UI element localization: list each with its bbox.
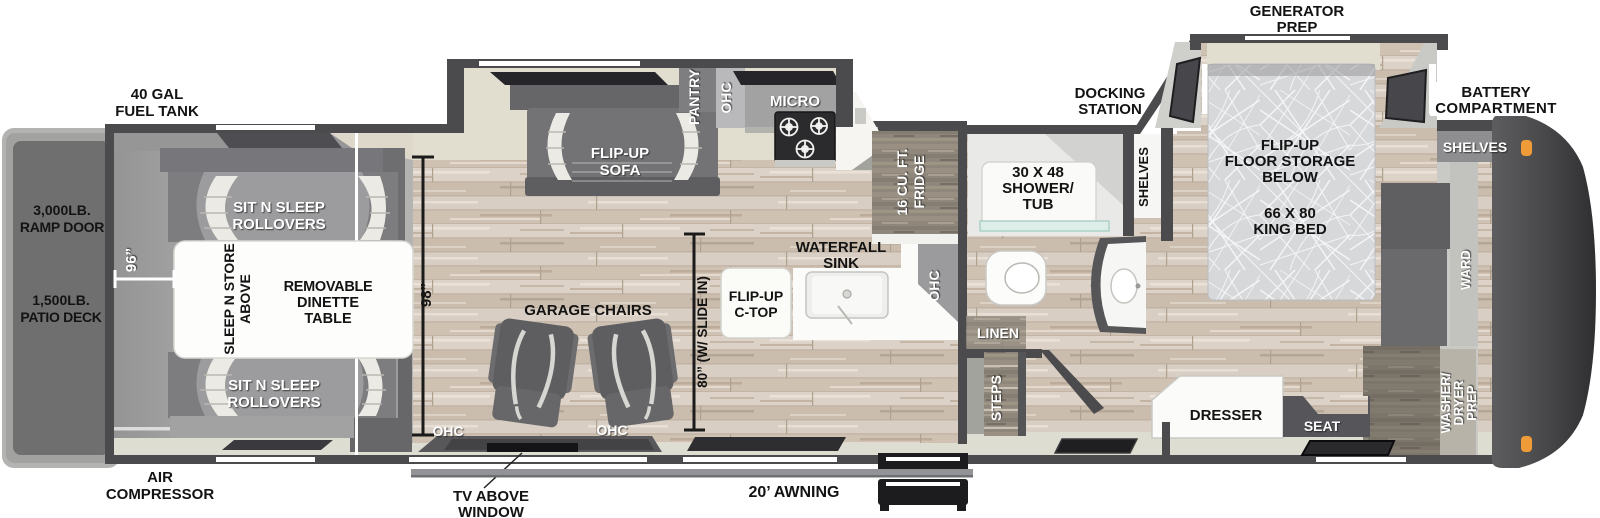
svg-text:PANTRY: PANTRY [686, 68, 702, 125]
svg-text:REMOVABLE: REMOVABLE [284, 279, 373, 295]
svg-text:ROLLOVERS: ROLLOVERS [227, 394, 320, 411]
svg-text:STEPS: STEPS [988, 375, 1004, 421]
svg-text:FUEL TANK: FUEL TANK [115, 103, 199, 120]
svg-text:SHELVES: SHELVES [1443, 139, 1507, 155]
svg-text:SHOWER/: SHOWER/ [1002, 180, 1075, 197]
svg-text:WATERFALL: WATERFALL [796, 239, 887, 256]
svg-text:SEAT: SEAT [1304, 418, 1341, 434]
svg-text:SOFA: SOFA [600, 162, 641, 179]
svg-text:SHELVES: SHELVES [1136, 147, 1151, 207]
svg-text:SIT N SLEEP: SIT N SLEEP [233, 199, 325, 216]
svg-text:MICRO: MICRO [770, 93, 820, 110]
svg-text:DOCKING: DOCKING [1075, 85, 1146, 102]
svg-text:SLEEP N STORE: SLEEP N STORE [221, 243, 237, 355]
svg-text:GARAGE CHAIRS: GARAGE CHAIRS [524, 302, 652, 319]
svg-text:C-TOP: C-TOP [734, 304, 777, 320]
svg-text:SIT N SLEEP: SIT N SLEEP [228, 377, 320, 394]
svg-text:COMPRESSOR: COMPRESSOR [106, 486, 215, 503]
svg-text:BATTERY: BATTERY [1461, 84, 1530, 101]
svg-text:ROLLOVERS: ROLLOVERS [232, 216, 325, 233]
svg-text:WINDOW: WINDOW [458, 504, 525, 518]
svg-text:1,500LB.: 1,500LB. [32, 292, 90, 308]
svg-text:ABOVE: ABOVE [237, 274, 253, 324]
svg-text:OHC: OHC [596, 422, 627, 438]
svg-text:FLOOR STORAGE: FLOOR STORAGE [1225, 153, 1356, 170]
svg-text:FLIP-UP: FLIP-UP [1261, 137, 1319, 154]
svg-text:GENERATOR: GENERATOR [1250, 3, 1345, 20]
svg-text:COMPARTMENT: COMPARTMENT [1435, 100, 1557, 117]
svg-text:20’ AWNING: 20’ AWNING [749, 484, 840, 501]
svg-text:16 CU. FT.: 16 CU. FT. [894, 149, 910, 216]
svg-text:OHC: OHC [718, 82, 734, 113]
svg-text:FLIP-UP: FLIP-UP [729, 288, 783, 304]
svg-text:3,000LB.: 3,000LB. [33, 202, 91, 218]
svg-text:WARD: WARD [1458, 250, 1473, 290]
svg-text:STATION: STATION [1078, 101, 1142, 118]
svg-text:30 X 48: 30 X 48 [1012, 164, 1064, 181]
svg-text:AIR: AIR [147, 469, 173, 486]
svg-text:OHC: OHC [926, 270, 942, 301]
svg-text:DINETTE: DINETTE [297, 295, 359, 311]
svg-text:66 X 80: 66 X 80 [1264, 205, 1316, 222]
svg-text:RAMP DOOR: RAMP DOOR [20, 219, 104, 235]
svg-text:40 GAL: 40 GAL [131, 86, 184, 103]
svg-text:OHC: OHC [432, 423, 463, 439]
svg-text:PREP: PREP [1464, 385, 1479, 421]
svg-text:BELOW: BELOW [1262, 169, 1319, 186]
svg-text:KING BED: KING BED [1253, 221, 1327, 238]
svg-text:DRESSER: DRESSER [1190, 407, 1263, 424]
svg-text:TUB: TUB [1023, 196, 1054, 213]
svg-text:96”: 96” [123, 248, 140, 272]
svg-text:TV ABOVE: TV ABOVE [453, 488, 529, 505]
svg-text:FLIP-UP: FLIP-UP [591, 145, 649, 162]
svg-text:FRIDGE: FRIDGE [911, 156, 927, 209]
svg-text:PATIO DECK: PATIO DECK [20, 309, 101, 325]
svg-text:LINEN: LINEN [977, 325, 1019, 341]
svg-text:SINK: SINK [823, 255, 859, 272]
svg-text:80” (W/ SLIDE IN): 80” (W/ SLIDE IN) [695, 276, 710, 388]
svg-text:98”: 98” [418, 283, 435, 307]
svg-text:TABLE: TABLE [304, 311, 352, 327]
svg-text:PREP: PREP [1277, 19, 1318, 36]
